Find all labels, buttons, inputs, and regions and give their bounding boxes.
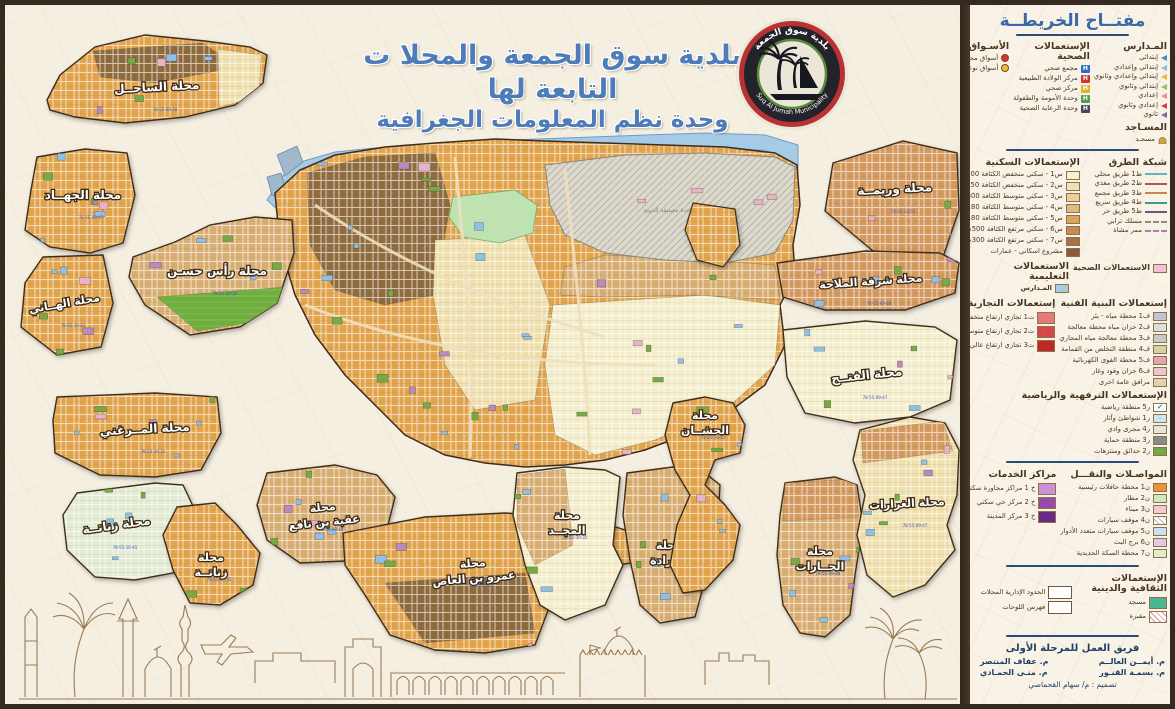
legend-item-label: مركز صحي: [1045, 85, 1077, 92]
legend-swatch: [1153, 494, 1167, 503]
legend-swatch: [1145, 230, 1167, 232]
health-use-label: الاستعمالات الصحية: [1073, 264, 1150, 273]
legend-item-label: فهرس اللوحات: [1002, 604, 1045, 611]
legend-item: إبتدائي وثانوي: [1094, 83, 1167, 90]
legend-item-label: ن4 موقف سيارات: [1098, 517, 1150, 524]
legend-item-label: ف5 محطة القوى الكهربائية: [1073, 357, 1150, 364]
legend-swatch: [1066, 171, 1080, 180]
legend-item: ف6 خزان وقود وغاز: [1059, 367, 1167, 376]
legend-swatch: [1161, 103, 1167, 109]
district-fragment: 78-55-10-41محلة الهــاني: [21, 255, 113, 357]
commercial-list: ت1 تجاري ارتفاع منخفضت2 تجاري ارتفاع متو…: [970, 312, 1055, 352]
legend-item: ف3 محطة معالجة مياه المجاري: [1059, 334, 1167, 343]
map-poster: قاعدة معيتيقة الجوية78-55-09-48محلة السا…: [0, 0, 1175, 709]
district-fragment: 78-55-09-48محلة الساحــل: [47, 35, 267, 123]
team-block: فريق العمل للمرحلة الأولى م. أيمــن العا…: [978, 643, 1167, 689]
legend-item: خ 1 مراكز مجاورة سكنية: [970, 483, 1056, 495]
legend-swatch: [1037, 326, 1055, 338]
legend-item: س6 - سكني مرتفع الكثافة 500م: [970, 226, 1080, 235]
legend-item-label: إبتدائي: [1139, 54, 1158, 61]
airbase-label: قاعدة معيتيقة الجوية: [643, 207, 695, 214]
legend-item-label: خ 1 مراكز مجاورة سكنية: [970, 485, 1035, 492]
district-fragment: 78-55-10-32محلة المــرغني: [53, 393, 221, 477]
legend-swatch: [1153, 505, 1167, 514]
district-fragment: 78-55-10-32محلة رأس حسـن: [129, 217, 294, 335]
legend-item-label: إبتدائي وثانوي: [1119, 83, 1158, 90]
district-fragment: 78-55-10-55محلة وريمــة: [825, 141, 959, 257]
transport-header: المواصـلات والنقـــل: [1060, 470, 1167, 480]
section-rule: [1006, 635, 1138, 637]
legend-item: ف5 محطة القوى الكهربائية: [1059, 356, 1167, 365]
legend-item: ت1 تجاري ارتفاع منخفض: [970, 312, 1055, 324]
legend-swatch: [1153, 367, 1167, 376]
legend-swatch: [1153, 323, 1167, 332]
legend-item: س2 - سكني منخفض الكثافة 450م: [970, 182, 1080, 191]
title-line-2: وحدة نظم المعلومات الجغرافية: [330, 107, 775, 133]
team-member: م. عفاف المنتصر: [980, 657, 1049, 666]
legend-item-label: ن1 محطة حافلات رئيسية: [1078, 484, 1150, 491]
team-title: فريق العمل للمرحلة الأولى: [978, 643, 1167, 654]
legend-item-label: س4 - سكني متوسط الكثافة 180م: [970, 204, 1063, 211]
legend-item: ممر مشاة: [1084, 227, 1167, 234]
health-facilities-header: الإستعمالات الصحية: [1013, 42, 1090, 63]
legend-item: ط1 طريق محلي: [1084, 171, 1167, 178]
section-rule: [1006, 461, 1138, 463]
legend-swatch: [1066, 226, 1080, 235]
legend-divider-bar: [960, 5, 970, 704]
legend-swatch: H: [1081, 85, 1090, 93]
legend-item: إبتدائي وإعدادي: [1094, 64, 1167, 71]
legend-swatch: [1161, 55, 1167, 61]
markets-header: الأسـواق: [970, 42, 1009, 52]
legend-title-rule: [1016, 34, 1129, 36]
educational-swatch: [1055, 284, 1069, 293]
legend-item: Hمركز الولادة الطبيعية: [1013, 75, 1090, 83]
legend-item-label: ر2 حدائق ومنتزهات: [1094, 448, 1150, 455]
infrastructure-list: ف1 محطة مياه - بئرف2 خزان مياه محطة معال…: [1059, 312, 1167, 387]
legend-swatch: [1145, 173, 1167, 175]
legend-item: إعدادي: [1094, 92, 1167, 99]
services-list: خ 1 مراكز مجاورة سكنيةخ 2 مركز حي سكنيخ …: [970, 483, 1056, 523]
health-facilities-list: Hمجمع صحيHمركز الولادة الطبيعيةHمركز صحي…: [1013, 65, 1090, 113]
mosque-item: مسجـد: [978, 135, 1167, 144]
district-fragment: 78-55-10-55محلةزناتــة: [163, 503, 267, 605]
legend-item-label: الحدود الإدارية المحلات: [981, 589, 1046, 596]
legend-swatch: [1066, 204, 1080, 213]
legend-item: خ 2 مركز حي سكني: [970, 497, 1056, 509]
district-fragment: 78-55-09-48محلةالحــارات: [777, 477, 865, 637]
health-use-swatch: [1153, 264, 1167, 273]
legend-item-label: س3 - سكني متوسط الكثافة 300م: [970, 193, 1063, 200]
legend-item: ن2 مطار: [1060, 494, 1167, 503]
legend-top-section: المـدارس إبتدائيإبتدائي وإعداديإبتدائي و…: [978, 40, 1167, 121]
residential-header: الإستعمالات السكنية: [970, 158, 1080, 168]
legend-item-label: مقبرة: [1130, 613, 1146, 620]
educational-item: المـدارس: [978, 284, 1069, 293]
plate-number: 78-55-09-47: [903, 523, 928, 528]
legend-swatch: [1153, 527, 1167, 536]
legend-item: إبتدائي: [1094, 54, 1167, 61]
legend-item: مرافق عامة اخرى: [1059, 378, 1167, 387]
legend-item: ط3 طريق مجمع: [1084, 190, 1167, 197]
legend-item: ن7 محطة السكة الحديدية: [1060, 549, 1167, 558]
section-rule: [1006, 149, 1138, 151]
logo-emblem-icon: بلدية سوق الجمعة Suq Al Jumah Municipali…: [735, 17, 849, 131]
legend-item-label: س7 - سكني مرتفع الكثافة 300م: [970, 237, 1063, 244]
mosques-header: المسـاجد: [978, 123, 1167, 133]
legend-item-label: ف1 محطة مياه - بئر: [1091, 313, 1150, 320]
schools-list: إبتدائيإبتدائي وإعداديإبتدائي وإعدادي وث…: [1094, 54, 1167, 118]
district-label: محلة الجهــاد: [45, 188, 122, 202]
legend-swatch: [1066, 215, 1080, 224]
legend-item: ف4 منطقة التخلص من القمامة: [1059, 345, 1167, 354]
legend-swatch: [1066, 193, 1080, 202]
legend-swatch: [1153, 425, 1167, 434]
legend-swatch: [1048, 586, 1072, 599]
infrastructure-header: إستعمالات البنية الفنية: [1059, 299, 1167, 309]
legend-item-label: خ 3 مركز المدينة: [987, 513, 1036, 520]
legend-swatch: [1149, 597, 1167, 609]
legend-item-label: ن2 مطار: [1124, 495, 1150, 502]
legend-item-label: ط2 طريق مغذي: [1095, 180, 1142, 187]
cultural-header: الإستعمالات الثقافية والدينية: [1076, 574, 1167, 595]
legend-item-label: س5 - سكني متوسط الكثافة 180م: [970, 215, 1063, 222]
legend-swatch: [1161, 112, 1167, 118]
legend-item-label: س1 - سكني منخفض الكثافة 500 م: [970, 171, 1063, 178]
legend-swatch: H: [1081, 65, 1090, 73]
team-member: م. أيمــن العالــم: [1099, 657, 1165, 666]
plate-number: 78-55-10-32: [213, 291, 238, 296]
district-shape: [825, 141, 959, 257]
legend-item-label: ط3 طريق مجمع: [1095, 190, 1142, 197]
plate-number: 78-55-09-48: [867, 301, 892, 306]
legend-item: ط2 طريق مغذي: [1084, 180, 1167, 187]
legend-item: مقبرة: [1076, 611, 1167, 623]
legend-item: أسواق مجمعة: [970, 54, 1009, 62]
legend-item-label: ر5 منطقة رياضية: [1101, 404, 1150, 411]
legend-item: ر5 منطقة رياضية: [1057, 403, 1167, 412]
legend-item-label: ثانوي: [1143, 111, 1158, 118]
legend-item: Hمركز صحي: [1013, 85, 1090, 93]
legend-swatch: [1145, 211, 1167, 213]
legend-item-label: إعدادي: [1138, 92, 1158, 99]
legend-item: ر2 حدائق ومنتزهات: [1057, 447, 1167, 456]
legend-swatch: [1153, 334, 1167, 343]
legend-item-label: ف6 خزان وقود وغاز: [1092, 368, 1150, 375]
legend-item: فهرس اللوحات: [978, 601, 1072, 614]
legend-swatch: [1161, 74, 1167, 80]
legend-swatch: H: [1081, 75, 1090, 83]
roads-header: شبكة الطرق: [1084, 158, 1167, 168]
legend-swatch: [1153, 378, 1167, 387]
legend-item-label: ف2 خزان مياه محطة معالجة: [1067, 324, 1150, 331]
legend-item-label: مجمع صحي: [1044, 65, 1078, 72]
legend-item: س3 - سكني متوسط الكثافة 300م: [970, 193, 1080, 202]
legend-item: Hمجمع صحي: [1013, 65, 1090, 73]
legend-item: ر4 مجرى وادي: [1057, 425, 1167, 434]
legend-item-label: أسواق نوعيـة: [970, 65, 998, 72]
legend-swatch: [1066, 237, 1080, 246]
legend-item-label: مرافق عامة اخرى: [1099, 379, 1150, 386]
legend-swatch: [1153, 516, 1167, 525]
legend-item: ط5 طريق حر: [1084, 208, 1167, 215]
legend-item-label: ف4 منطقة التخلص من القمامة: [1061, 346, 1150, 353]
legend-swatch: [1153, 414, 1167, 423]
legend-item-label: مركز الولادة الطبيعية: [1019, 75, 1078, 82]
legend-swatch: [1038, 483, 1056, 495]
legend-swatch: [1153, 483, 1167, 492]
plate-number: 78-55-10-41: [61, 323, 86, 328]
legend-item-label: ف3 محطة معالجة مياه المجاري: [1059, 335, 1150, 342]
legend-swatch: [1038, 497, 1056, 509]
municipality-logo: بلدية سوق الجمعة Suq Al Jumah Municipali…: [735, 17, 849, 131]
team-member: م. بسمـة القنـور: [1099, 668, 1165, 677]
recreation-list: ر5 منطقة رياضيةر1 شواطئ وآثارر4 مجرى واد…: [1057, 403, 1167, 456]
legend-item: ف1 محطة مياه - بئر: [1059, 312, 1167, 321]
district-fragment: 78-55-09-47محلة الغرارات: [853, 417, 959, 597]
legend-swatch: [1153, 345, 1167, 354]
legend-item-label: ط5 طريق حر: [1102, 208, 1142, 215]
boundaries-list: الحدود الإدارية المحلاتفهرس اللوحات: [978, 586, 1072, 614]
legend-item: مشروع اسكاني - عمارات: [970, 248, 1080, 257]
legend-item: أسواق نوعيـة: [970, 64, 1009, 72]
legend-swatch: [1037, 312, 1055, 324]
section-rule: [1006, 565, 1138, 567]
legend-swatch: [1145, 192, 1167, 194]
legend-swatch: [1001, 54, 1009, 62]
legend-swatch: [1066, 248, 1080, 257]
legend-swatch: H: [1081, 105, 1090, 113]
title-line-1: بلدية سوق الجمعة والمحلا ت التابعة لها: [330, 39, 775, 107]
legend-item-label: مسجد: [1128, 599, 1146, 606]
legend-item: ف2 خزان مياه محطة معالجة: [1059, 323, 1167, 332]
legend-item-label: ن3 ميناء: [1126, 506, 1151, 513]
plate-number: 78-55-10-55: [891, 209, 916, 214]
legend-swatch: [1001, 64, 1009, 72]
legend-item: ن1 محطة حافلات رئيسية: [1060, 483, 1167, 492]
schools-header: المـدارس: [1094, 42, 1167, 52]
transport-list: ن1 محطة حافلات رئيسيةن2 مطارن3 ميناءن4 م…: [1060, 483, 1167, 558]
legend-swatch: [1153, 436, 1167, 445]
legend-item-label: إبتدائي وإعدادي وثانوي: [1094, 73, 1158, 80]
legend-item-label: ر4 مجرى وادي: [1107, 426, 1150, 433]
legend-item-label: ت2 تجاري ارتفاع متوسط: [970, 328, 1034, 335]
legend-item-label: وحدة الأمومة والطفولة: [1013, 95, 1078, 102]
legend-item: مسجد: [1076, 597, 1167, 609]
legend-item-label: ن7 محطة السكة الحديدية: [1077, 550, 1150, 557]
legend-swatch: [1153, 312, 1167, 321]
legend-item-label: ر3 منطقة حماية: [1104, 437, 1150, 444]
team-member: م. منـى الحمـادي: [980, 668, 1048, 677]
legend-item: ت2 تجاري ارتفاع متوسط: [970, 326, 1055, 338]
legend-swatch: [1048, 601, 1072, 614]
legend-item-label: ن6 برج البث: [1114, 539, 1150, 546]
roads-list: ط1 طريق محليط2 طريق مغذيط3 طريق مجمعط4 ط…: [1084, 171, 1167, 235]
legend-item: س5 - سكني متوسط الكثافة 180م: [970, 215, 1080, 224]
legend-item: س4 - سكني متوسط الكثافة 180م: [970, 204, 1080, 213]
legend-item: ن6 برج البث: [1060, 538, 1167, 547]
health-use-item: الاستعمالات الصحية: [1073, 264, 1167, 273]
legend-item: إعدادي وثانوي: [1094, 102, 1167, 109]
legend-item: ن5 موقف سيارات متعدد الأدوار: [1060, 527, 1167, 536]
legend-item: ط4 طريق سريع: [1084, 199, 1167, 206]
legend-item-label: ن5 موقف سيارات متعدد الأدوار: [1060, 528, 1150, 535]
plate-number: 78-55-09-47: [863, 395, 888, 400]
design-credit: تصميم : م/ سهام القحماصي: [978, 680, 1167, 689]
legend-item-label: ت3 تجاري ارتفاع عالي: [970, 342, 1034, 349]
legend-item-label: أسواق مجمعة: [970, 55, 998, 62]
legend-swatch: [1145, 183, 1167, 185]
legend-item-label: س2 - سكني منخفض الكثافة 450م: [970, 182, 1063, 189]
legend-item-label: ت1 تجاري ارتفاع منخفض: [970, 314, 1034, 321]
legend-swatch: [1153, 447, 1167, 456]
cultural-list: مسجدمقبرة: [1076, 597, 1167, 623]
plate-number: 78-55-09-48: [153, 107, 178, 112]
legend-swatch: [1145, 221, 1167, 223]
legend-item: س7 - سكني مرتفع الكثافة 300م: [970, 237, 1080, 246]
legend-item: إبتدائي وإعدادي وثانوي: [1094, 73, 1167, 80]
legend-item-label: مسلك ترابي: [1107, 218, 1142, 225]
legend-swatch: [1149, 611, 1167, 623]
legend-item: س1 - سكني منخفض الكثافة 500 م: [970, 171, 1080, 180]
recreation-header: الإستعمالات الترفهية والرياضية: [978, 391, 1167, 401]
plate-number: 78-55-10-41: [113, 545, 138, 550]
legend-item-label: ط4 طريق سريع: [1095, 199, 1142, 206]
legend-swatch: [1038, 511, 1056, 523]
legend-panel: مفتــاح الخريطــة المـدارس إبتدائيإبتدائ…: [970, 5, 1175, 704]
legend-swatch: [1145, 202, 1167, 204]
mosque-label: مسجـد: [1135, 136, 1155, 143]
legend-item: ن3 ميناء: [1060, 505, 1167, 514]
educational-label: المـدارس: [1021, 285, 1052, 292]
plate-number: 78-55-09-47: [79, 215, 104, 220]
legend-swatch: H: [1081, 95, 1090, 103]
legend-swatch: [1153, 403, 1167, 412]
legend-item: مسلك ترابي: [1084, 218, 1167, 225]
legend-swatch: [1037, 340, 1055, 352]
legend-item-label: ط1 طريق محلي: [1094, 171, 1142, 178]
legend-swatch: [1153, 538, 1167, 547]
mosque-dome-icon: [1158, 135, 1167, 144]
legend-item: ن4 موقف سيارات: [1060, 516, 1167, 525]
legend-item: خ 3 مركز المدينة: [970, 511, 1056, 523]
legend-item: ر1 شواطئ وآثار: [1057, 414, 1167, 423]
educational-header: الاستعمالات التعليمية: [978, 262, 1069, 283]
legend-item: ر3 منطقة حماية: [1057, 436, 1167, 445]
services-header: مراكز الخدمات: [970, 470, 1056, 480]
district-fragment: 78-55-09-48محلة شرفة الملاحة: [777, 251, 959, 310]
residential-list: س1 - سكني منخفض الكثافة 500 مس2 - سكني م…: [970, 171, 1080, 257]
legend-item: ت3 تجاري ارتفاع عالي: [970, 340, 1055, 352]
commercial-header: إستعمالات التجارية: [970, 299, 1055, 309]
legend-swatch: [1066, 182, 1080, 191]
legend-item-label: س6 - سكني مرتفع الكثافة 500م: [970, 226, 1063, 233]
legend-item-label: ممر مشاة: [1113, 227, 1142, 234]
legend-item-label: خ 2 مركز حي سكني: [977, 499, 1036, 506]
legend-swatch: [1161, 84, 1167, 90]
legend-item-label: ر1 شواطئ وآثار: [1103, 415, 1150, 422]
legend-item: الحدود الإدارية المحلات: [978, 586, 1072, 599]
district-fragment: 78-55-09-47محلة الجهــاد: [25, 149, 135, 253]
district-fragment: 78-55-09-47محلة الفتــح: [783, 321, 957, 423]
legend-swatch: [1161, 65, 1167, 71]
legend-item-label: إعدادي وثانوي: [1118, 102, 1158, 109]
legend-item-label: إبتدائي وإعدادي: [1114, 64, 1158, 71]
district-label: محلة رأس حسـن: [167, 263, 267, 278]
markets-list: أسواق مجمعةأسواق نوعيـة: [970, 54, 1009, 72]
legend-item: Hوحدة الرعاية الصحية: [1013, 105, 1090, 113]
legend-swatch: [1153, 356, 1167, 365]
legend-item: ثانوي: [1094, 111, 1167, 118]
legend-item-label: مشروع اسكاني - عمارات: [991, 248, 1063, 255]
legend-item-label: وحدة الرعاية الصحية: [1020, 105, 1078, 112]
legend-swatch: [1153, 549, 1167, 558]
page-title: بلدية سوق الجمعة والمحلا ت التابعة لها و…: [330, 39, 775, 133]
plate-number: 78-55-10-32: [141, 449, 166, 454]
legend-title: مفتــاح الخريطــة: [978, 11, 1167, 31]
legend-swatch: [1161, 93, 1167, 99]
legend-item: Hوحدة الأمومة والطفولة: [1013, 95, 1090, 103]
